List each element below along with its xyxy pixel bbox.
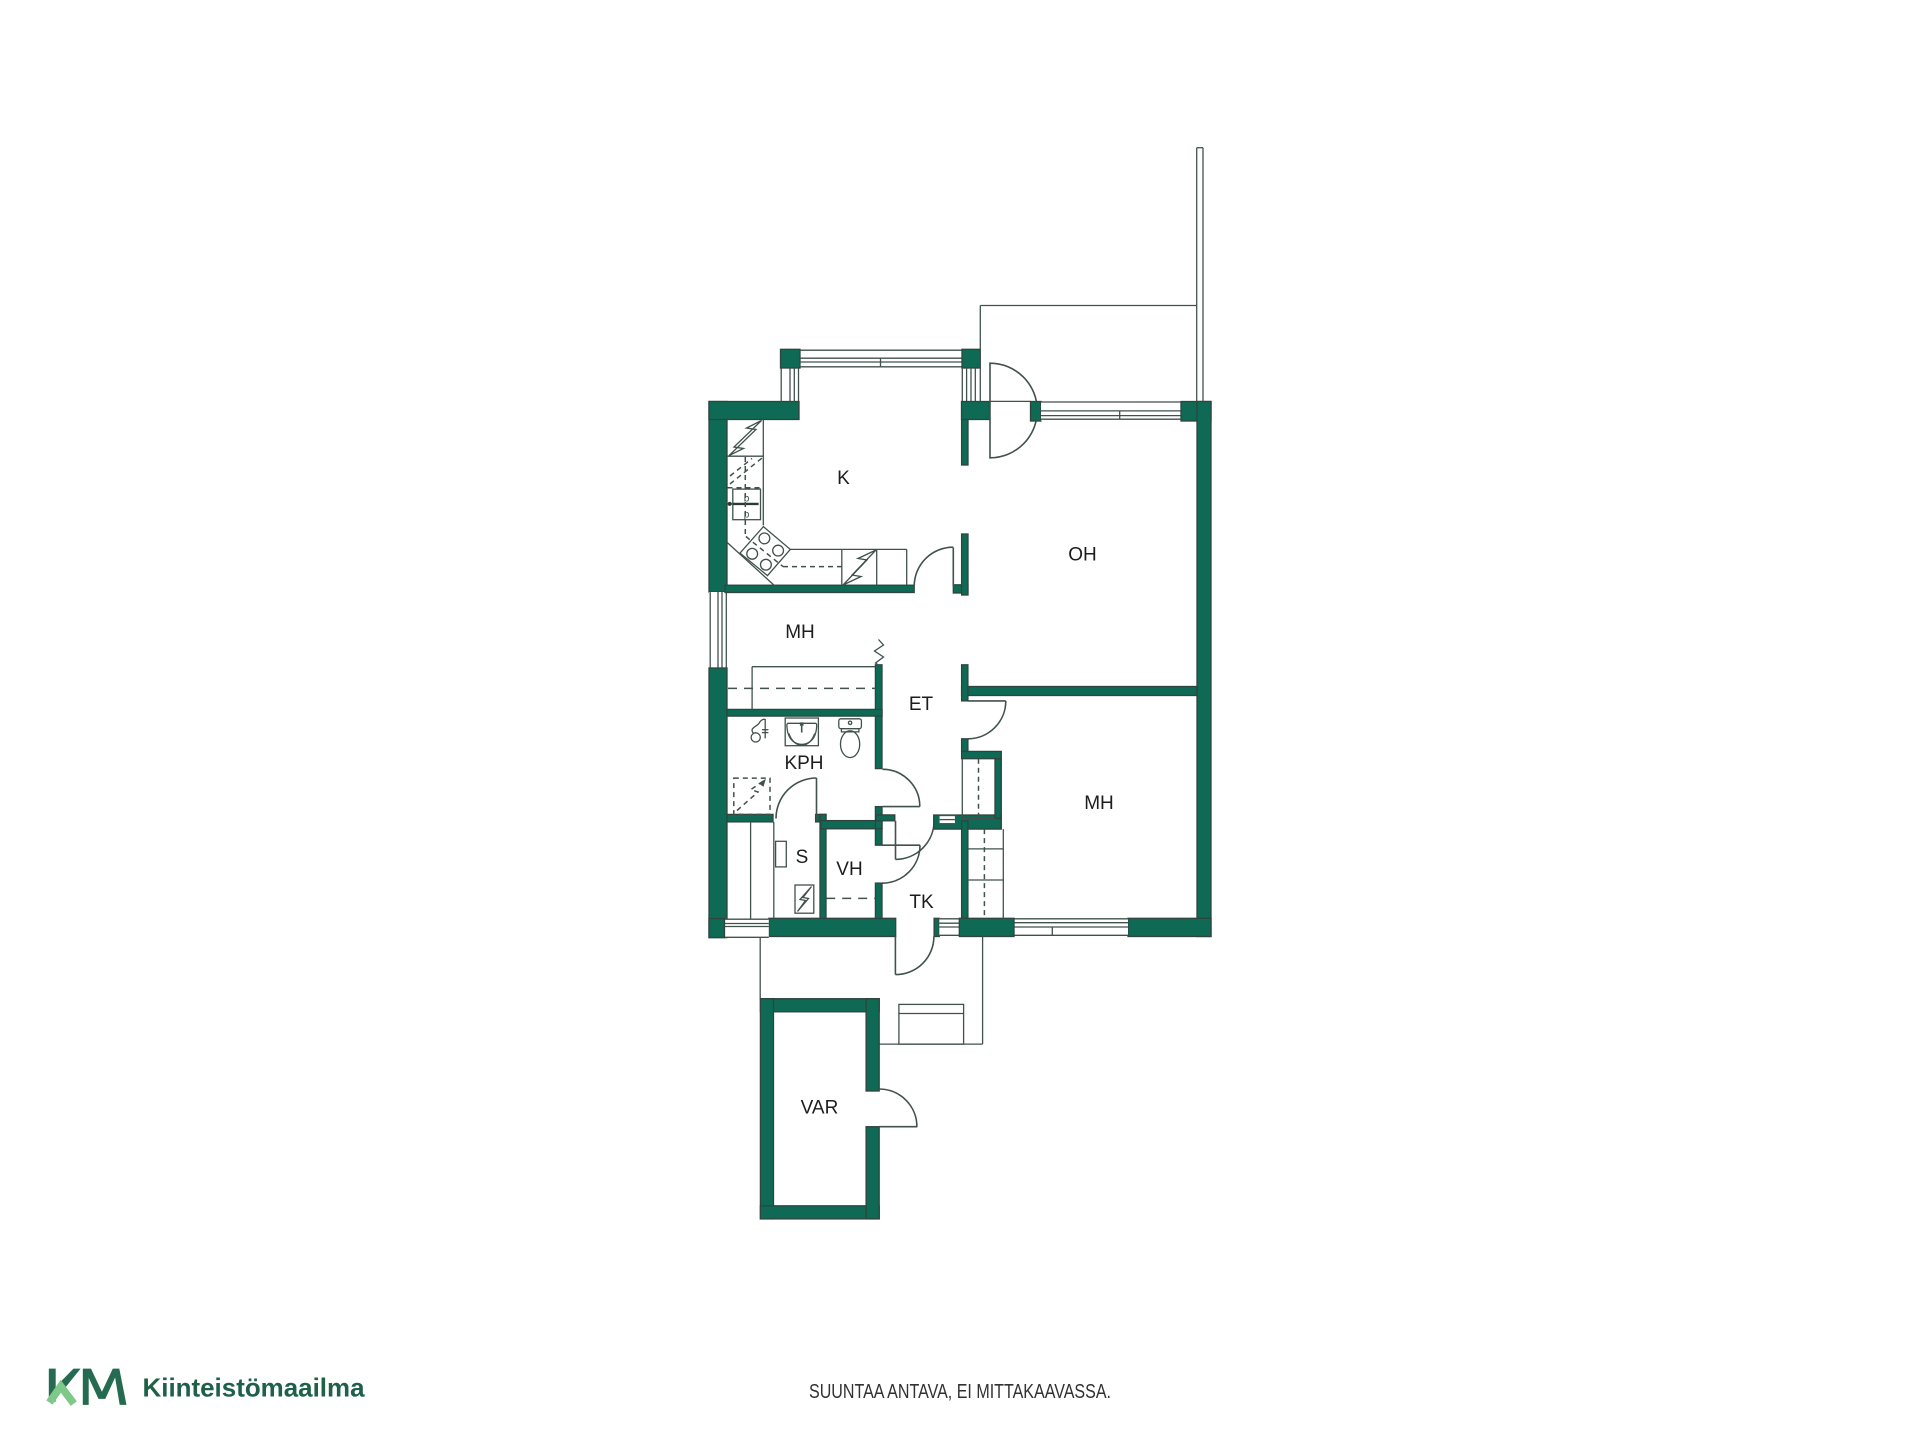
svg-text:TK: TK: [909, 892, 934, 913]
svg-text:SUUNTAA ANTAVA, EI MITTAKAAVAS: SUUNTAA ANTAVA, EI MITTAKAAVASSA.: [809, 1381, 1111, 1403]
svg-text:OH: OH: [1068, 545, 1097, 566]
svg-text:VH: VH: [836, 859, 862, 880]
svg-text:S: S: [796, 847, 809, 868]
svg-text:MH: MH: [1084, 793, 1114, 814]
svg-text:Kiinteistömaailma: Kiinteistömaailma: [143, 1373, 366, 1403]
svg-text:ET: ET: [909, 694, 934, 715]
svg-text:K: K: [837, 468, 850, 489]
svg-text:MH: MH: [785, 622, 815, 643]
svg-text:KPH: KPH: [784, 753, 823, 774]
svg-text:VAR: VAR: [801, 1098, 839, 1119]
